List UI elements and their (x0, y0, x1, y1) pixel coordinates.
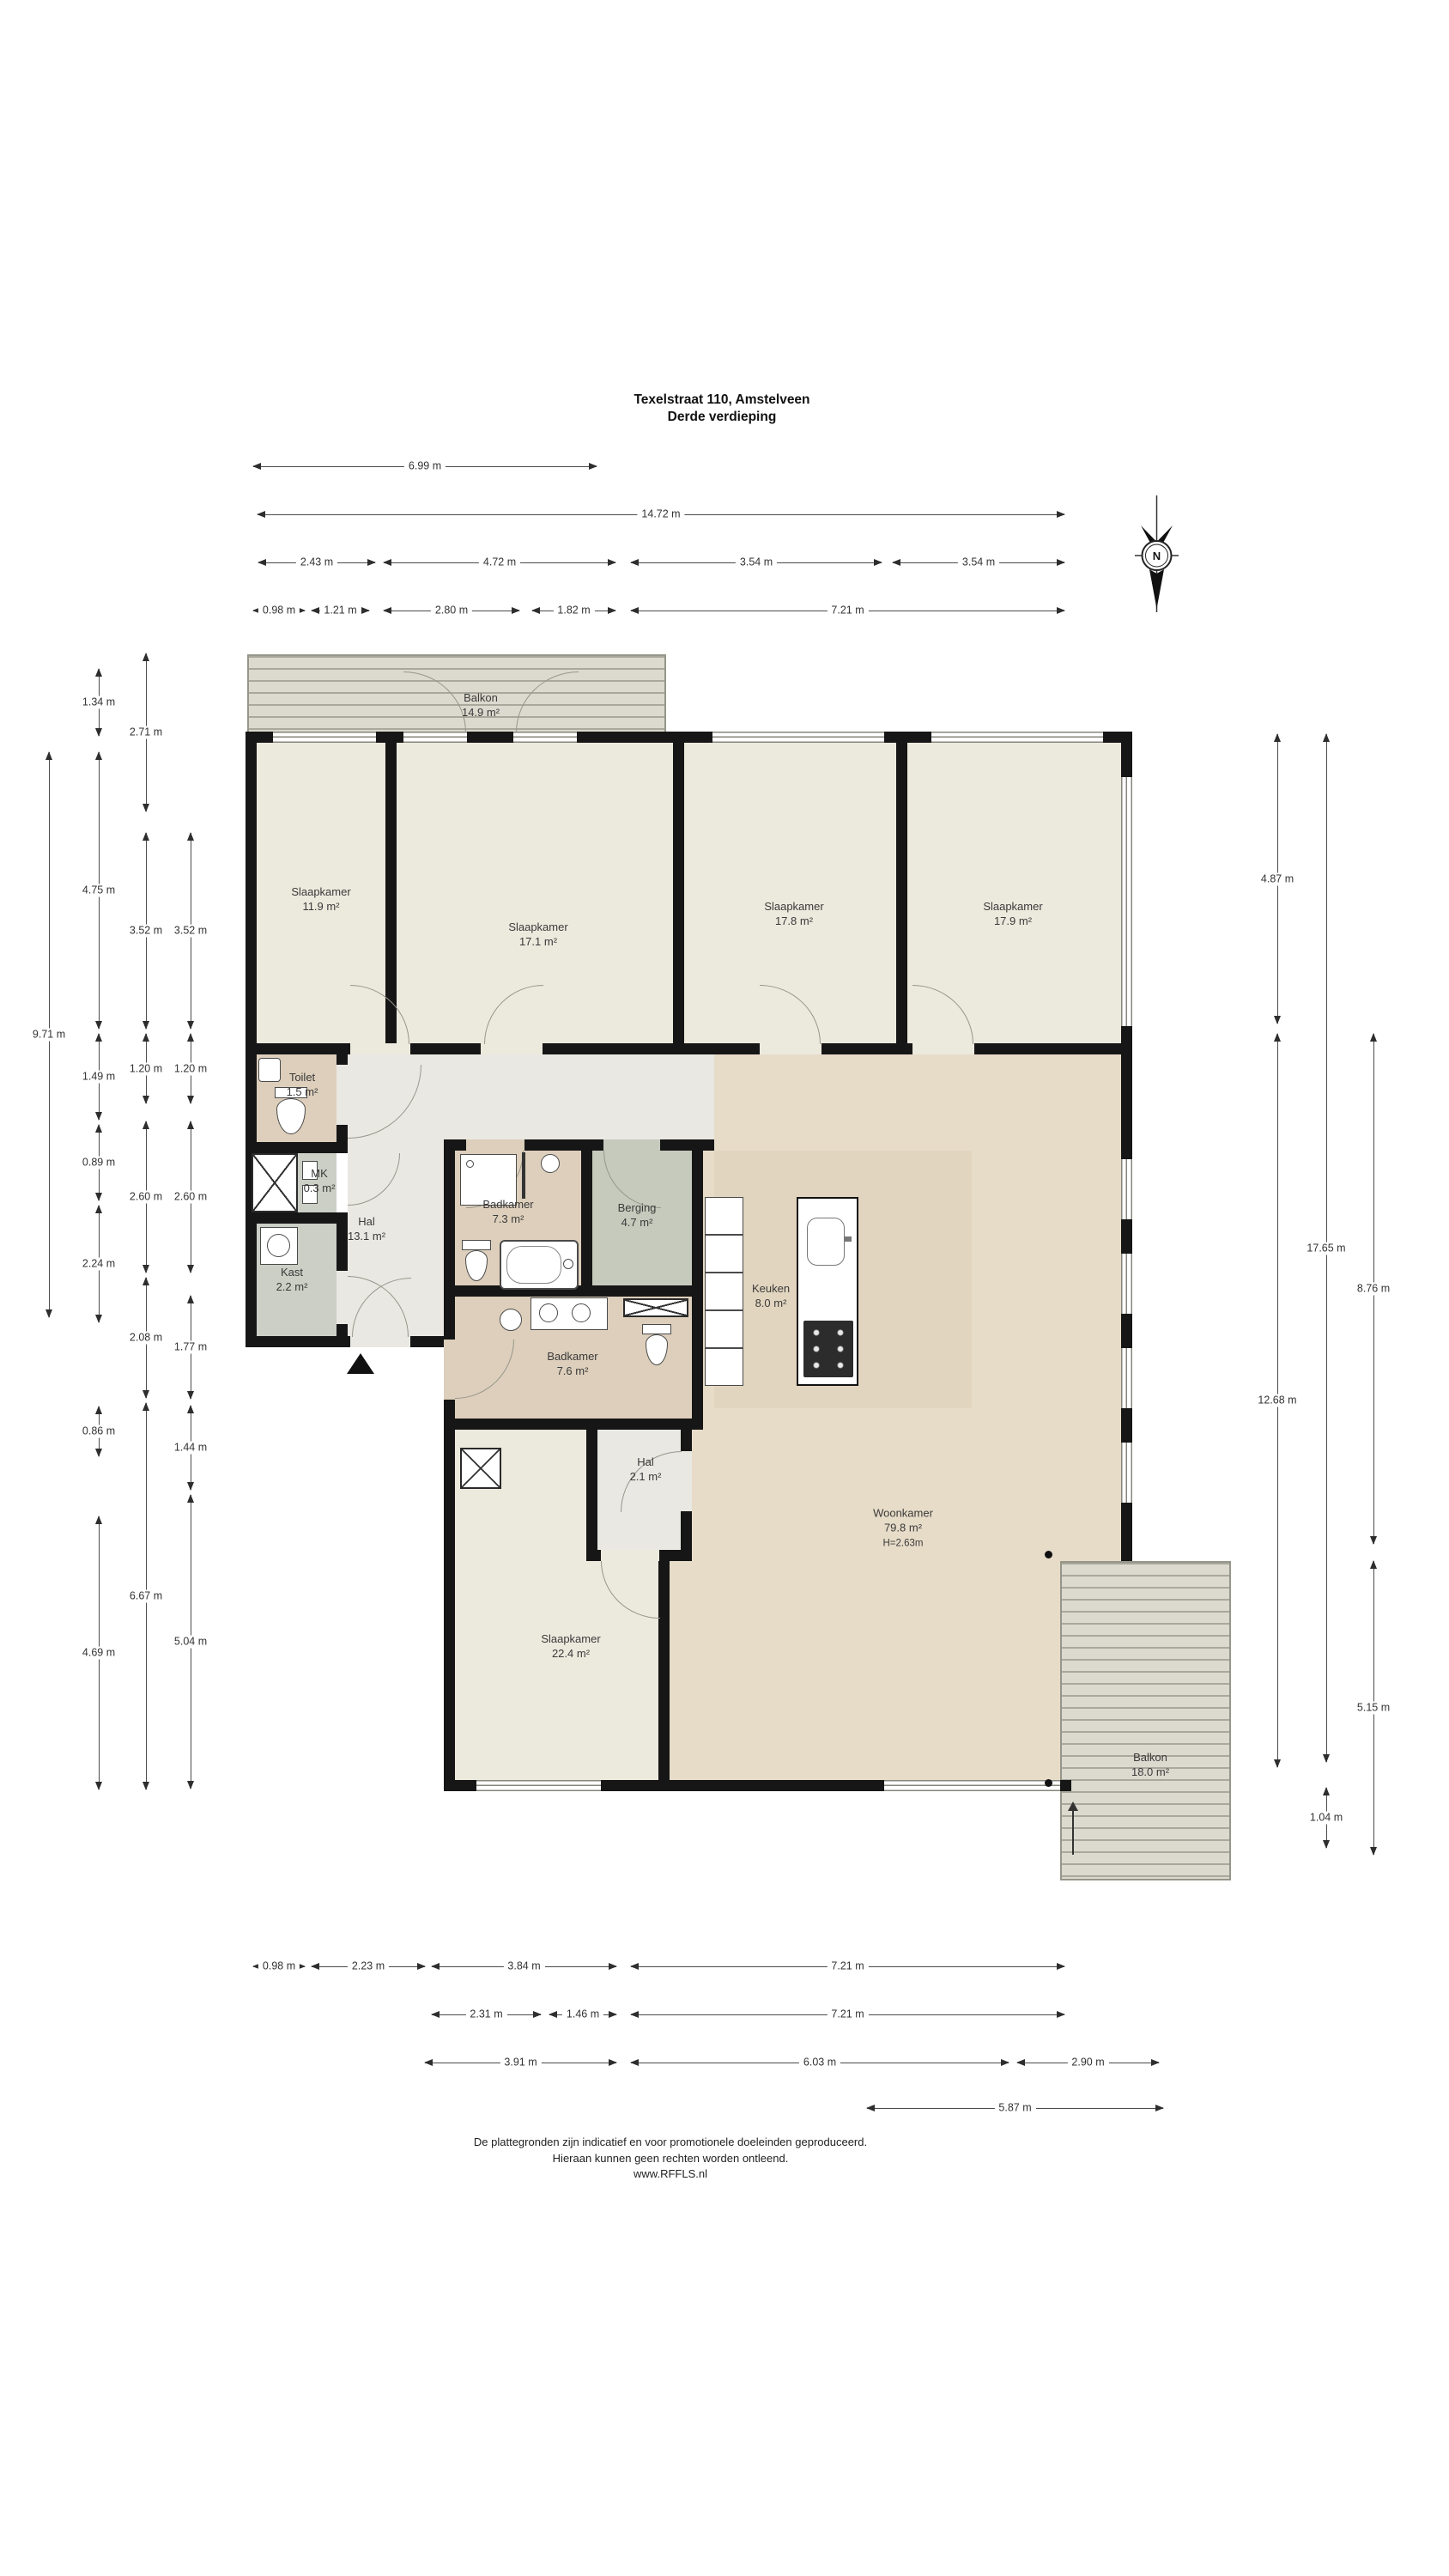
wall-toilet-bottom (246, 1142, 348, 1153)
shaft-3 (460, 1448, 501, 1489)
dim-top: 4.72 m (384, 562, 615, 563)
shower-drain-icon (466, 1160, 474, 1168)
dim-bottom: 6.03 m (631, 2063, 1009, 2063)
kitchen-cabinet-4 (705, 1310, 743, 1348)
window-living-1 (1121, 1159, 1132, 1219)
room-label-slaapkamer-5: Slaapkamer22.4 m² (541, 1632, 600, 1662)
dim-left: 1.44 m (191, 1406, 191, 1490)
room-label-toilet: Toilet1.5 m² (287, 1071, 318, 1100)
dim-right: 1.04 m (1326, 1788, 1327, 1848)
bathtub-inner (506, 1246, 561, 1284)
window-bed4 (931, 732, 1103, 743)
room-label-kast: Kast2.2 m² (276, 1266, 308, 1295)
room-label-woonkamer: Woonkamer79.8 m²H=2.63m (873, 1507, 933, 1551)
wall-bath2-bottom (444, 1419, 703, 1430)
stove (803, 1321, 853, 1377)
dim-bottom: 2.31 m (432, 2014, 541, 2015)
disclaimer-url: www.RFFLS.nl (474, 2166, 867, 2183)
dim-bottom: 1.46 m (549, 2014, 616, 2015)
door-opening-bed2 (481, 1043, 543, 1054)
dim-left: 4.69 m (99, 1516, 100, 1789)
washing-machine (260, 1227, 298, 1265)
dim-bottom: 2.23 m (312, 1966, 425, 1967)
title-address: Texelstraat 110, Amstelveen (634, 392, 809, 409)
door-opening-toilet (336, 1065, 348, 1125)
dim-top: 14.72 m (258, 514, 1064, 515)
dim-left: 5.04 m (191, 1495, 191, 1789)
dim-bottom: 0.98 m (253, 1966, 305, 1967)
room-label-balkon-bottom: Balkon18.0 m² (1131, 1751, 1169, 1780)
washing-machine-drum (267, 1234, 290, 1257)
door-opening-closet (336, 1271, 348, 1324)
bathtub-faucet (563, 1259, 573, 1269)
livingroom-floor-strip3 (670, 1561, 714, 1780)
wall-west-spine (444, 1139, 455, 1791)
balcony-drain-arrow-line (1072, 1810, 1074, 1855)
wall-bed3-bed4 (896, 732, 907, 1054)
dim-left: 2.60 m (146, 1121, 147, 1273)
kitchen-sink (807, 1218, 845, 1266)
disclaimer-line1: De plattegronden zijn indicatief en voor… (474, 2135, 867, 2151)
door-opening-front (350, 1336, 410, 1347)
dim-bottom: 3.84 m (432, 1966, 616, 1967)
window-living-2 (1121, 1254, 1132, 1314)
disclaimer-line2: Hieraan kunnen geen rechten worden ontle… (474, 2151, 867, 2167)
dim-bottom: 2.90 m (1017, 2063, 1159, 2063)
door-opening-hall2 (681, 1451, 692, 1511)
room-label-slaapkamer-3: Slaapkamer17.8 m² (764, 900, 823, 929)
kitchen-cabinet-2 (705, 1235, 743, 1273)
compass-north-icon: N (1116, 494, 1197, 614)
dim-right: 17.65 m (1326, 734, 1327, 1762)
dim-left: 1.77 m (191, 1296, 191, 1399)
dim-top: 0.98 m (253, 611, 305, 611)
room-label-mk: MK0.3 m² (304, 1167, 336, 1196)
door-opening-bed5 (601, 1550, 659, 1561)
window-living-south (884, 1780, 1060, 1791)
entrance-step-marker (347, 1353, 374, 1374)
dim-left: 1.20 m (191, 1034, 191, 1103)
floorplan-canvas: Texelstraat 110, Amstelveen Derde verdie… (0, 0, 1449, 2576)
balcony-bottom-floor (1060, 1561, 1231, 1880)
door-opening-bed1 (350, 1043, 410, 1054)
door-opening-bed3 (760, 1043, 822, 1054)
shaft-2 (623, 1298, 688, 1317)
room-label-slaapkamer-2: Slaapkamer17.1 m² (508, 920, 567, 950)
dim-right: 8.76 m (1373, 1034, 1374, 1544)
ceiling-fan-icon (541, 1154, 560, 1173)
svg-text:N: N (1153, 550, 1161, 562)
dim-right: 4.87 m (1277, 734, 1278, 1024)
balcony-post-1 (1045, 1551, 1052, 1558)
wall-mk-bottom (246, 1212, 348, 1224)
dim-top: 3.54 m (631, 562, 882, 563)
bathtub (500, 1240, 579, 1290)
dim-top: 7.21 m (631, 611, 1064, 611)
dim-right: 5.15 m (1373, 1561, 1374, 1855)
dim-left: 1.49 m (99, 1034, 100, 1120)
window-living-3 (1121, 1348, 1132, 1408)
dim-bottom: 5.87 m (867, 2108, 1163, 2109)
dim-left: 2.71 m (146, 653, 147, 811)
dim-bottom: 7.21 m (631, 1966, 1064, 1967)
livingroom-floor-strip2 (692, 1430, 714, 1561)
room-label-balkon-top: Balkon14.9 m² (462, 691, 500, 720)
shaft-1 (252, 1153, 298, 1212)
wall-front (246, 1336, 444, 1347)
room-label-hal: Hal13.1 m² (348, 1215, 385, 1244)
dim-left: 0.89 m (99, 1125, 100, 1200)
page-title: Texelstraat 110, Amstelveen Derde verdie… (634, 392, 809, 426)
dim-left: 4.75 m (99, 752, 100, 1029)
toilet-sink (258, 1058, 281, 1082)
dim-left: 3.52 m (191, 833, 191, 1029)
title-floor: Derde verdieping (634, 409, 809, 426)
disclaimer: De plattegronden zijn indicatief en voor… (474, 2135, 867, 2183)
dim-left: 9.71 m (49, 752, 50, 1317)
balcony-door1-glass (403, 732, 467, 743)
window-bed3 (712, 732, 884, 743)
dim-left: 2.24 m (99, 1206, 100, 1322)
wall-left (246, 732, 257, 1347)
vanity (530, 1297, 608, 1330)
dim-left: 3.52 m (146, 833, 147, 1029)
balcony-door2-glass (513, 732, 577, 743)
kitchen-cabinet-5 (705, 1348, 743, 1386)
dim-top: 2.43 m (258, 562, 375, 563)
wall-bed2-bed3 (673, 732, 684, 1054)
dim-left: 1.34 m (99, 669, 100, 736)
dim-left: 2.08 m (146, 1278, 147, 1398)
room-label-badkamer-1: Badkamer7.3 m² (482, 1198, 533, 1227)
room-label-badkamer-2: Badkamer7.6 m² (547, 1350, 597, 1379)
window-living-4 (1121, 1443, 1132, 1503)
door-opening-bath1 (466, 1139, 524, 1151)
wall-hall2-left (586, 1419, 597, 1561)
door-opening-storage (603, 1139, 660, 1151)
balcony-drain-arrow-head (1068, 1801, 1078, 1811)
dim-top: 3.54 m (893, 562, 1064, 563)
dim-top: 1.82 m (532, 611, 615, 611)
room-label-slaapkamer-1: Slaapkamer11.9 m² (291, 885, 350, 914)
window-bed1 (273, 732, 376, 743)
toilet3-cistern (642, 1324, 671, 1334)
window-bed4-east (1121, 777, 1132, 1026)
room-label-slaapkamer-4: Slaapkamer17.9 m² (983, 900, 1042, 929)
door-opening-bed4 (912, 1043, 974, 1054)
wall-bath1-storage (581, 1151, 592, 1297)
dim-bottom: 3.91 m (425, 2063, 616, 2063)
dim-top: 6.99 m (253, 466, 597, 467)
dim-left: 6.67 m (146, 1403, 147, 1789)
dim-top: 2.80 m (384, 611, 519, 611)
vanity-sink-2 (572, 1303, 591, 1322)
balcony-post-2 (1045, 1779, 1052, 1787)
kitchen-cabinet-1 (705, 1197, 743, 1235)
dim-top: 1.21 m (312, 611, 369, 611)
dim-right: 12.68 m (1277, 1034, 1278, 1767)
design-radiator (500, 1309, 522, 1331)
room-label-keuken: Keuken8.0 m² (752, 1282, 790, 1311)
room-label-berging: Berging4.7 m² (618, 1201, 657, 1230)
dim-left: 0.86 m (99, 1406, 100, 1456)
window-bed5 (476, 1780, 601, 1791)
dim-left: 1.20 m (146, 1034, 147, 1103)
radiator-1 (522, 1152, 525, 1199)
door-opening-bath2 (444, 1340, 455, 1400)
dim-left: 2.60 m (191, 1121, 191, 1273)
dim-bottom: 7.21 m (631, 2014, 1064, 2015)
kitchen-cabinet-3 (705, 1273, 743, 1310)
vanity-sink-1 (539, 1303, 558, 1322)
toilet2-cistern (462, 1240, 491, 1250)
room-label-hal-2: Hal2.1 m² (630, 1455, 662, 1485)
